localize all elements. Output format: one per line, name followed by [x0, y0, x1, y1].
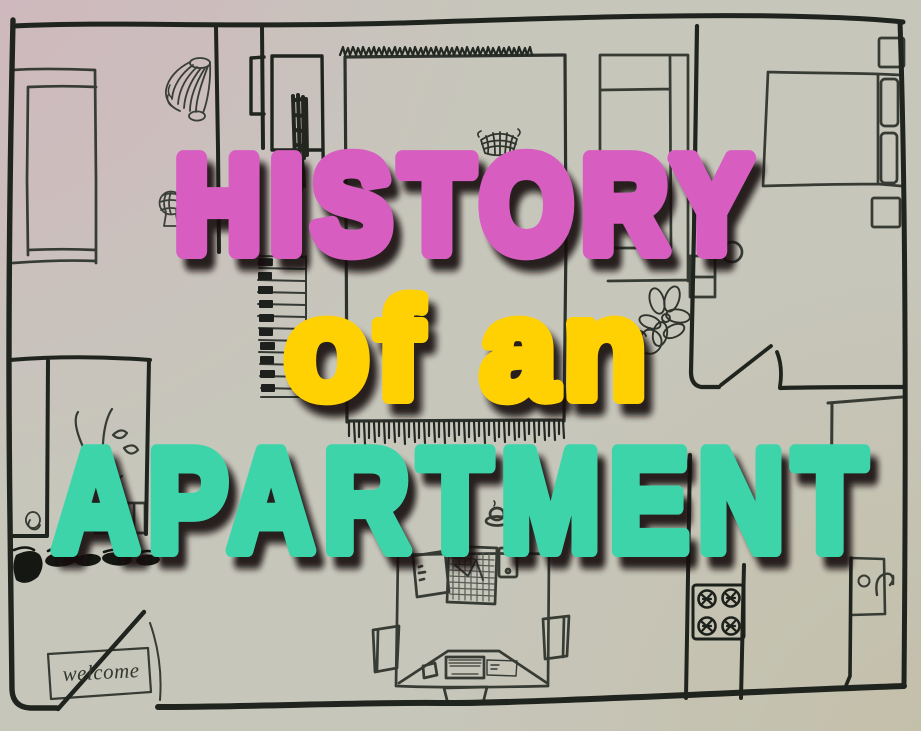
svg-text:of: of	[284, 272, 428, 428]
svg-text:an: an	[481, 272, 653, 428]
svg-text:welcome: welcome	[62, 658, 140, 686]
svg-text:APARTMENT: APARTMENT	[53, 421, 876, 583]
svg-text:HISTORY: HISTORY	[175, 129, 760, 280]
